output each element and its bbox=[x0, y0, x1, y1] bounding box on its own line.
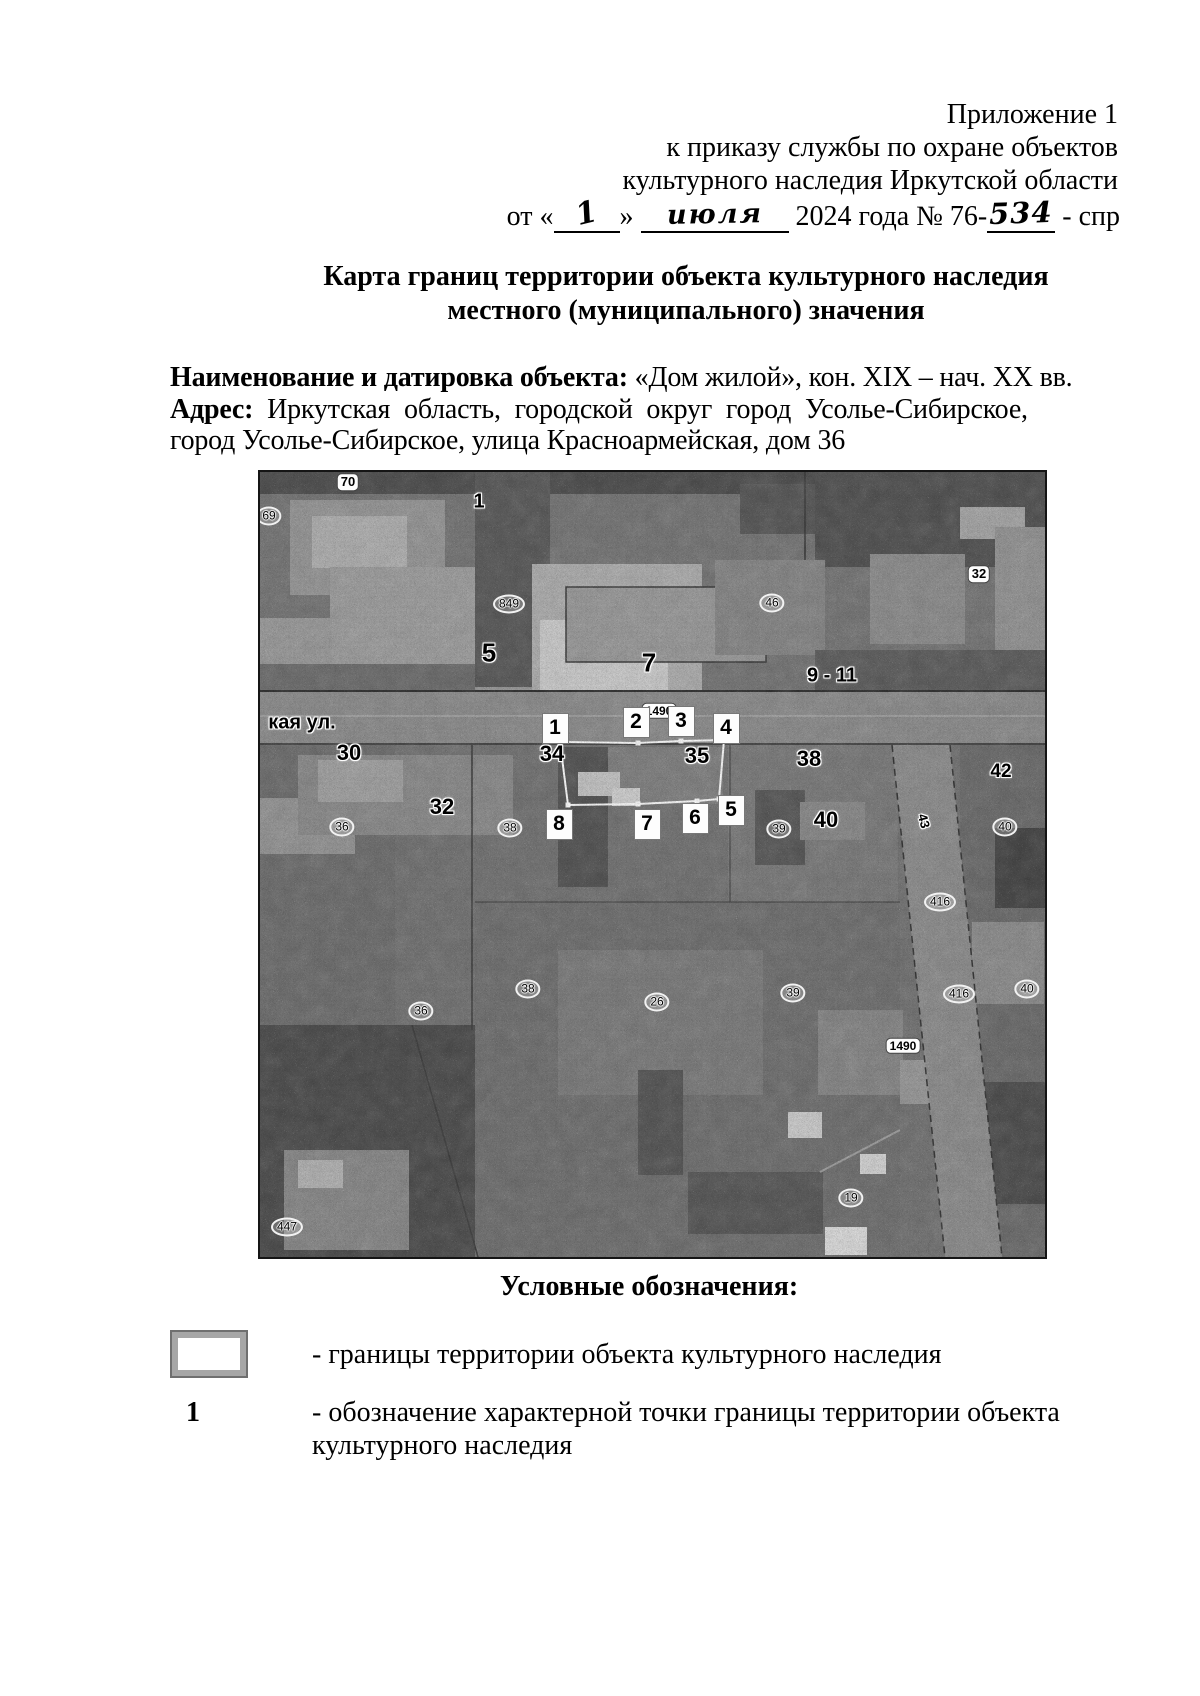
address-value: Иркутская область, городской округ город… bbox=[267, 394, 1028, 425]
month-underline: июля bbox=[641, 199, 789, 233]
legend-boundary-text: - границы территории объекта культурного… bbox=[312, 1339, 941, 1371]
date-middle: 2024 года № 76- bbox=[796, 201, 988, 232]
map-satellite-canvas bbox=[260, 472, 1045, 1257]
object-name-value: «Дом жилой», кон. XIX – нач. XX вв. bbox=[635, 362, 1073, 393]
title-line1: Карта границ территории объекта культурн… bbox=[252, 260, 1120, 294]
header-line-appendix: Приложение 1 bbox=[623, 98, 1118, 131]
date-suffix: - спр bbox=[1062, 201, 1120, 232]
handwritten-month: июля bbox=[666, 198, 762, 231]
document-page: Приложение 1 к приказу службы по охране … bbox=[0, 0, 1200, 1696]
date-prefix: от « bbox=[507, 201, 554, 232]
object-name-line: Наименование и датировка объекта: «Дом ж… bbox=[170, 362, 1122, 394]
handwritten-number: 534 bbox=[989, 195, 1054, 231]
address-label: Адрес: bbox=[170, 394, 253, 425]
legend-point-text-line2: культурного наследия bbox=[312, 1430, 1112, 1463]
legend-point-text-line1: - обозначение характерной точки границы … bbox=[312, 1397, 1112, 1430]
address-line2: город Усолье-Сибирское, улица Красноарме… bbox=[170, 425, 1122, 457]
title-line2: местного (муниципального) значения bbox=[252, 294, 1120, 328]
header-line-order: к приказу службы по охране объектов bbox=[623, 131, 1118, 164]
header-line-service: культурного наследия Иркутской области bbox=[623, 164, 1118, 197]
legend-heading: Условные обозначения: bbox=[500, 1271, 798, 1303]
address-line1: Адрес: Иркутская область, городской окру… bbox=[170, 394, 1122, 426]
map-image: кая ул.1579 - 11343538303240427032149014… bbox=[258, 470, 1047, 1259]
date-line: от «1» июля 2024 года № 76-534 - спр bbox=[507, 196, 1120, 233]
legend-point-text: - обозначение характерной точки границы … bbox=[312, 1397, 1112, 1462]
handwritten-day: 1 bbox=[572, 194, 601, 233]
page-title: Карта границ территории объекта культурн… bbox=[252, 260, 1120, 328]
object-name-label: Наименование и датировка объекта: bbox=[170, 362, 628, 393]
object-info: Наименование и датировка объекта: «Дом ж… bbox=[170, 362, 1122, 457]
legend-point-symbol: 1 bbox=[186, 1397, 200, 1429]
day-underline: 1 bbox=[554, 196, 620, 233]
header-block: Приложение 1 к приказу службы по охране … bbox=[623, 98, 1118, 197]
legend-boundary-symbol bbox=[172, 1332, 246, 1376]
after-day: » bbox=[620, 201, 634, 232]
number-underline: 534 bbox=[987, 196, 1055, 233]
